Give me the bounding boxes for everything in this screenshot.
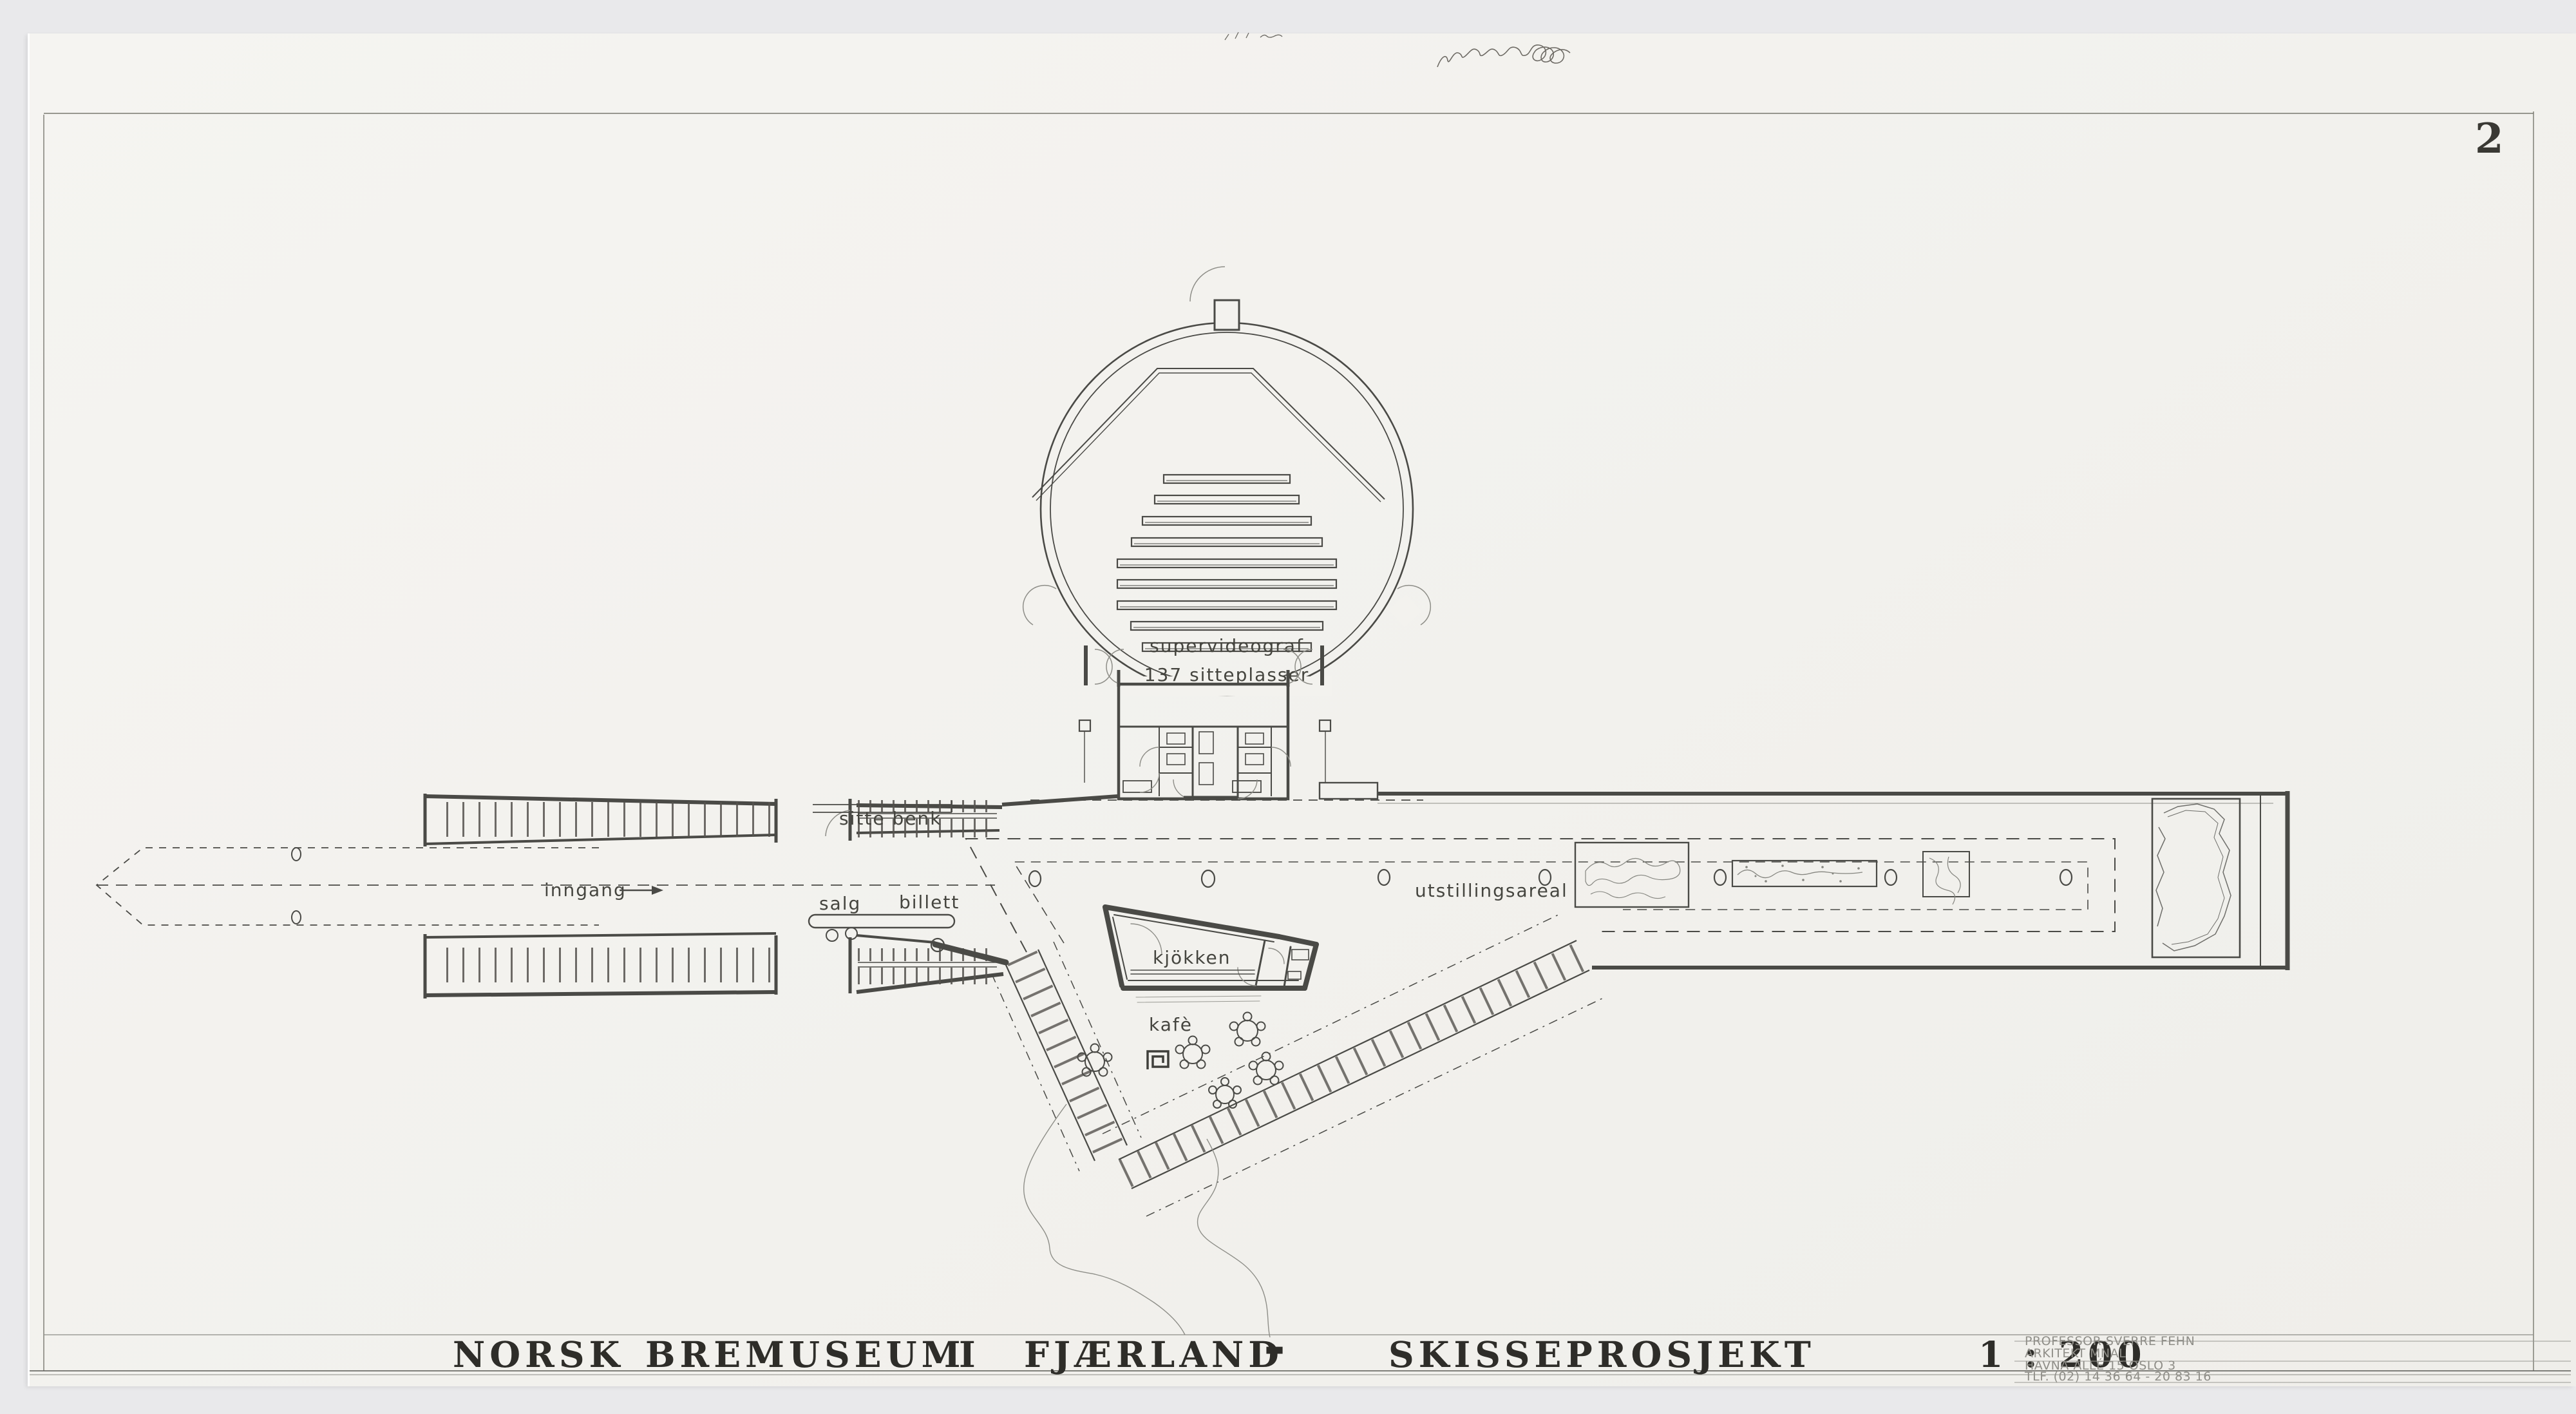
glacier-exhibit	[2156, 804, 2231, 951]
page-number: 2	[2475, 115, 2504, 163]
label-exhibition-area: utstillingsareal	[1415, 880, 1568, 901]
title-word-bremuseum: BREMUSEUM	[645, 1333, 965, 1375]
title-word-skisseprosjekt: SKISSEPROSJEKT	[1388, 1333, 1815, 1375]
spiral-sculpture	[1148, 1051, 1168, 1069]
title-word-fjaerland: FJÆRLAND	[1024, 1333, 1283, 1375]
exhibit-panels	[1575, 843, 1969, 907]
entrance-ramps	[425, 794, 1118, 998]
architect-stamp: PROFESSOR SVERRE FEHN ARKITEKT MNAL HAVN…	[2014, 1334, 2571, 1384]
sales-counter	[809, 915, 954, 951]
label-auditorium: supervideograf	[1150, 635, 1304, 656]
scanned-drawing-sheet: 2	[0, 0, 2576, 1414]
pond-contour	[1024, 1104, 1270, 1337]
label-entrance: inngang	[544, 879, 627, 901]
title-word-i: I	[959, 1333, 980, 1375]
label-bench: sitte benk	[839, 808, 942, 829]
title-separator: -	[1264, 1315, 1285, 1377]
label-kitchen: kjökken	[1153, 947, 1231, 968]
label-cafe: kafè	[1149, 1014, 1193, 1035]
pencil-scribbles	[1225, 32, 1570, 67]
label-sales: salg	[819, 893, 861, 914]
stamp-line-4: TLF. (02) 14 36 64 - 20 83 16	[2024, 1370, 2211, 1384]
label-tickets: billett	[899, 892, 960, 913]
auditorium-circle	[1023, 267, 1431, 696]
title-word-norsk: NORSK	[453, 1333, 624, 1375]
seating-rows	[1117, 475, 1336, 651]
label-auditorium-seats: 137 sitteplasser	[1144, 664, 1310, 685]
floor-plan-drawing: 2	[0, 0, 2576, 1414]
